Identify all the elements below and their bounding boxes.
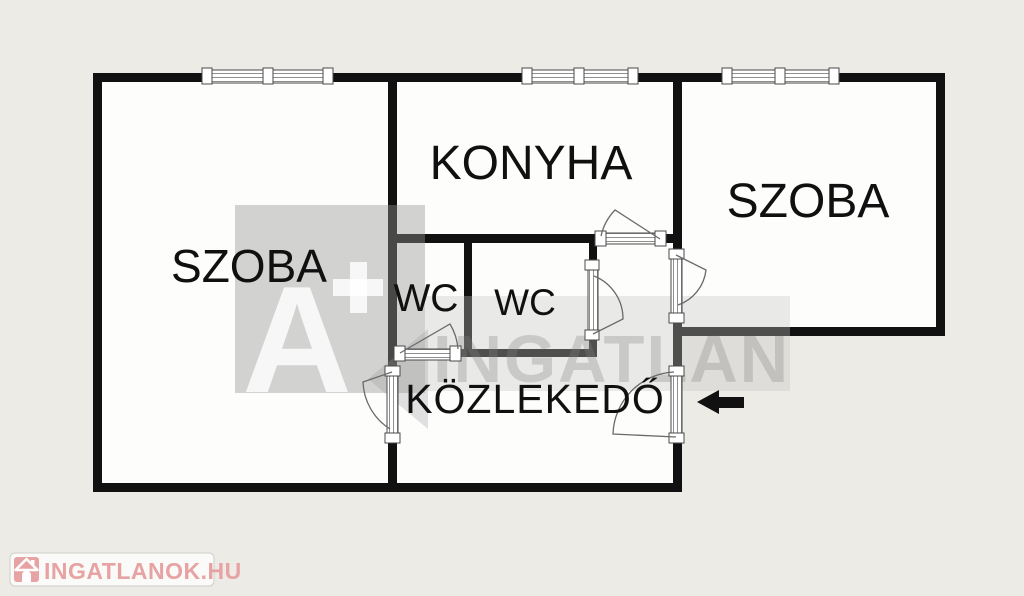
window-konyha [522, 68, 638, 84]
label-szoba-right: SZOBA [727, 175, 890, 228]
ingatlanok-logo: INGATLANOK.HU [10, 553, 242, 586]
wall-outer-bottom [93, 483, 682, 492]
label-konyha: KONYHA [430, 137, 633, 190]
label-wc-right: WC [494, 282, 556, 323]
floorplan-drawing: A INGATLAN [0, 0, 1024, 596]
wall-right-szoba-lower [673, 443, 682, 488]
label-kozlekedo: KÖZLEKEDŐ [405, 376, 665, 422]
floorplan-screenshot: A INGATLAN [0, 0, 1024, 596]
logo-text: INGATLANOK.HU [44, 558, 242, 584]
wall-left-szoba-lower [388, 443, 397, 488]
wall-konyha-bottom-right [665, 234, 682, 243]
wall-outer-right [936, 73, 945, 336]
wall-outer-left [93, 73, 102, 492]
window-szoba-left [202, 68, 333, 84]
label-wc-left: WC [394, 277, 459, 320]
window-szoba-right [722, 68, 839, 84]
house-icon [14, 557, 39, 582]
wall-right-szoba-upper [673, 81, 682, 250]
label-szoba-left: SZOBA [171, 240, 327, 292]
